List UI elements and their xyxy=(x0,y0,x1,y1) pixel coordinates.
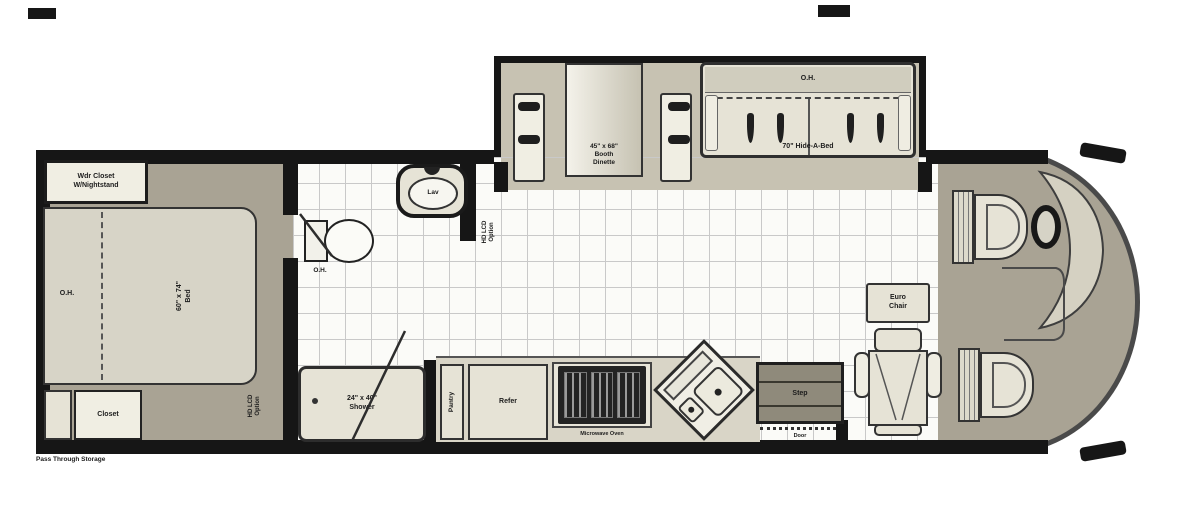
dinette-bench-left xyxy=(513,93,545,182)
microwave-label: Microwave Oven xyxy=(552,428,652,440)
bedroom-cabinet xyxy=(44,390,72,440)
roof-marker-left xyxy=(28,8,56,19)
lav-sink: Lav xyxy=(408,177,458,210)
euro-chair-footrest xyxy=(874,424,922,436)
sofa-tuft xyxy=(747,113,754,143)
slide-jamb-left xyxy=(494,162,508,192)
roof-marker-right xyxy=(818,5,850,17)
refrigerator: Refer xyxy=(468,364,548,440)
range-cooktop xyxy=(558,366,646,424)
driver-seat-back xyxy=(952,190,974,264)
burner-2 xyxy=(591,372,614,418)
wall-bottom xyxy=(36,440,1048,454)
bath-oh-label: O.H. xyxy=(304,266,336,277)
bench-cushion-slot xyxy=(518,135,540,144)
sofa-tuft xyxy=(777,113,784,143)
wall-bedroom-bath-upper xyxy=(283,157,298,215)
rv-floor-plan: Wdr Closet W/Nightstand O.H. 60" x 74" B… xyxy=(0,0,1200,520)
dinette-bench-right xyxy=(660,93,692,182)
sofa-tuft xyxy=(877,113,884,143)
euro-chair-arm-left xyxy=(854,352,870,398)
steering-wheel xyxy=(1031,205,1061,249)
euro-chair-arm-right xyxy=(926,352,942,398)
slide-jamb-right xyxy=(918,162,932,192)
pass-through-storage-label: Pass Through Storage xyxy=(36,454,166,466)
entry-door-label: Door xyxy=(756,431,844,441)
wall-bedroom-bath-lower xyxy=(283,258,298,447)
burner-1 xyxy=(564,372,587,418)
wardrobe-closet: Wdr Closet W/Nightstand xyxy=(44,160,148,204)
sofa-label: 70" Hide-A-Bed xyxy=(703,141,913,153)
euro-chair-label-box: Euro Chair xyxy=(866,283,930,323)
entry-door-threshold xyxy=(760,427,836,430)
burner-3 xyxy=(617,372,640,418)
step-tread-line-2 xyxy=(759,405,841,407)
bench-cushion-slot xyxy=(518,102,540,111)
passenger-seat-back xyxy=(958,348,980,422)
step-label: Step xyxy=(759,383,841,405)
wall-top-right xyxy=(926,150,1048,164)
sofa-oh-cabinet: O.H. xyxy=(705,67,911,93)
bench-cushion-slot xyxy=(668,135,690,144)
sofa-tuft xyxy=(847,113,854,143)
bedroom-closet: Closet xyxy=(74,390,142,440)
hall-tv-label: HD LCD Option xyxy=(479,200,499,264)
entry-step: Step xyxy=(756,362,844,424)
bedroom-tv-label: HD LCD Option xyxy=(245,374,265,438)
shower: 24" x 40" Shower xyxy=(298,366,426,442)
bench-cushion-slot xyxy=(668,102,690,111)
bedroom-oh-label: O.H. xyxy=(50,288,84,300)
toilet-bowl xyxy=(324,219,374,263)
euro-chair-seat xyxy=(868,350,928,426)
pantry-label: Pantry xyxy=(445,370,459,434)
bed-label: 60" x 74" Bed xyxy=(173,251,197,341)
euro-chair-back xyxy=(874,328,922,352)
slideout-floor-extension2 xyxy=(501,158,919,190)
sofa: O.H. 70" Hide-A-Bed xyxy=(700,62,916,158)
dinette-label: 45" x 68" Booth Dinette xyxy=(590,143,618,175)
windshield-pillar-bottom xyxy=(1079,440,1127,462)
dinette-table: 45" x 68" Booth Dinette xyxy=(565,63,643,177)
shower-drain xyxy=(312,398,318,404)
windshield-pillar-top xyxy=(1079,142,1127,164)
bed-fold-line xyxy=(101,212,103,380)
